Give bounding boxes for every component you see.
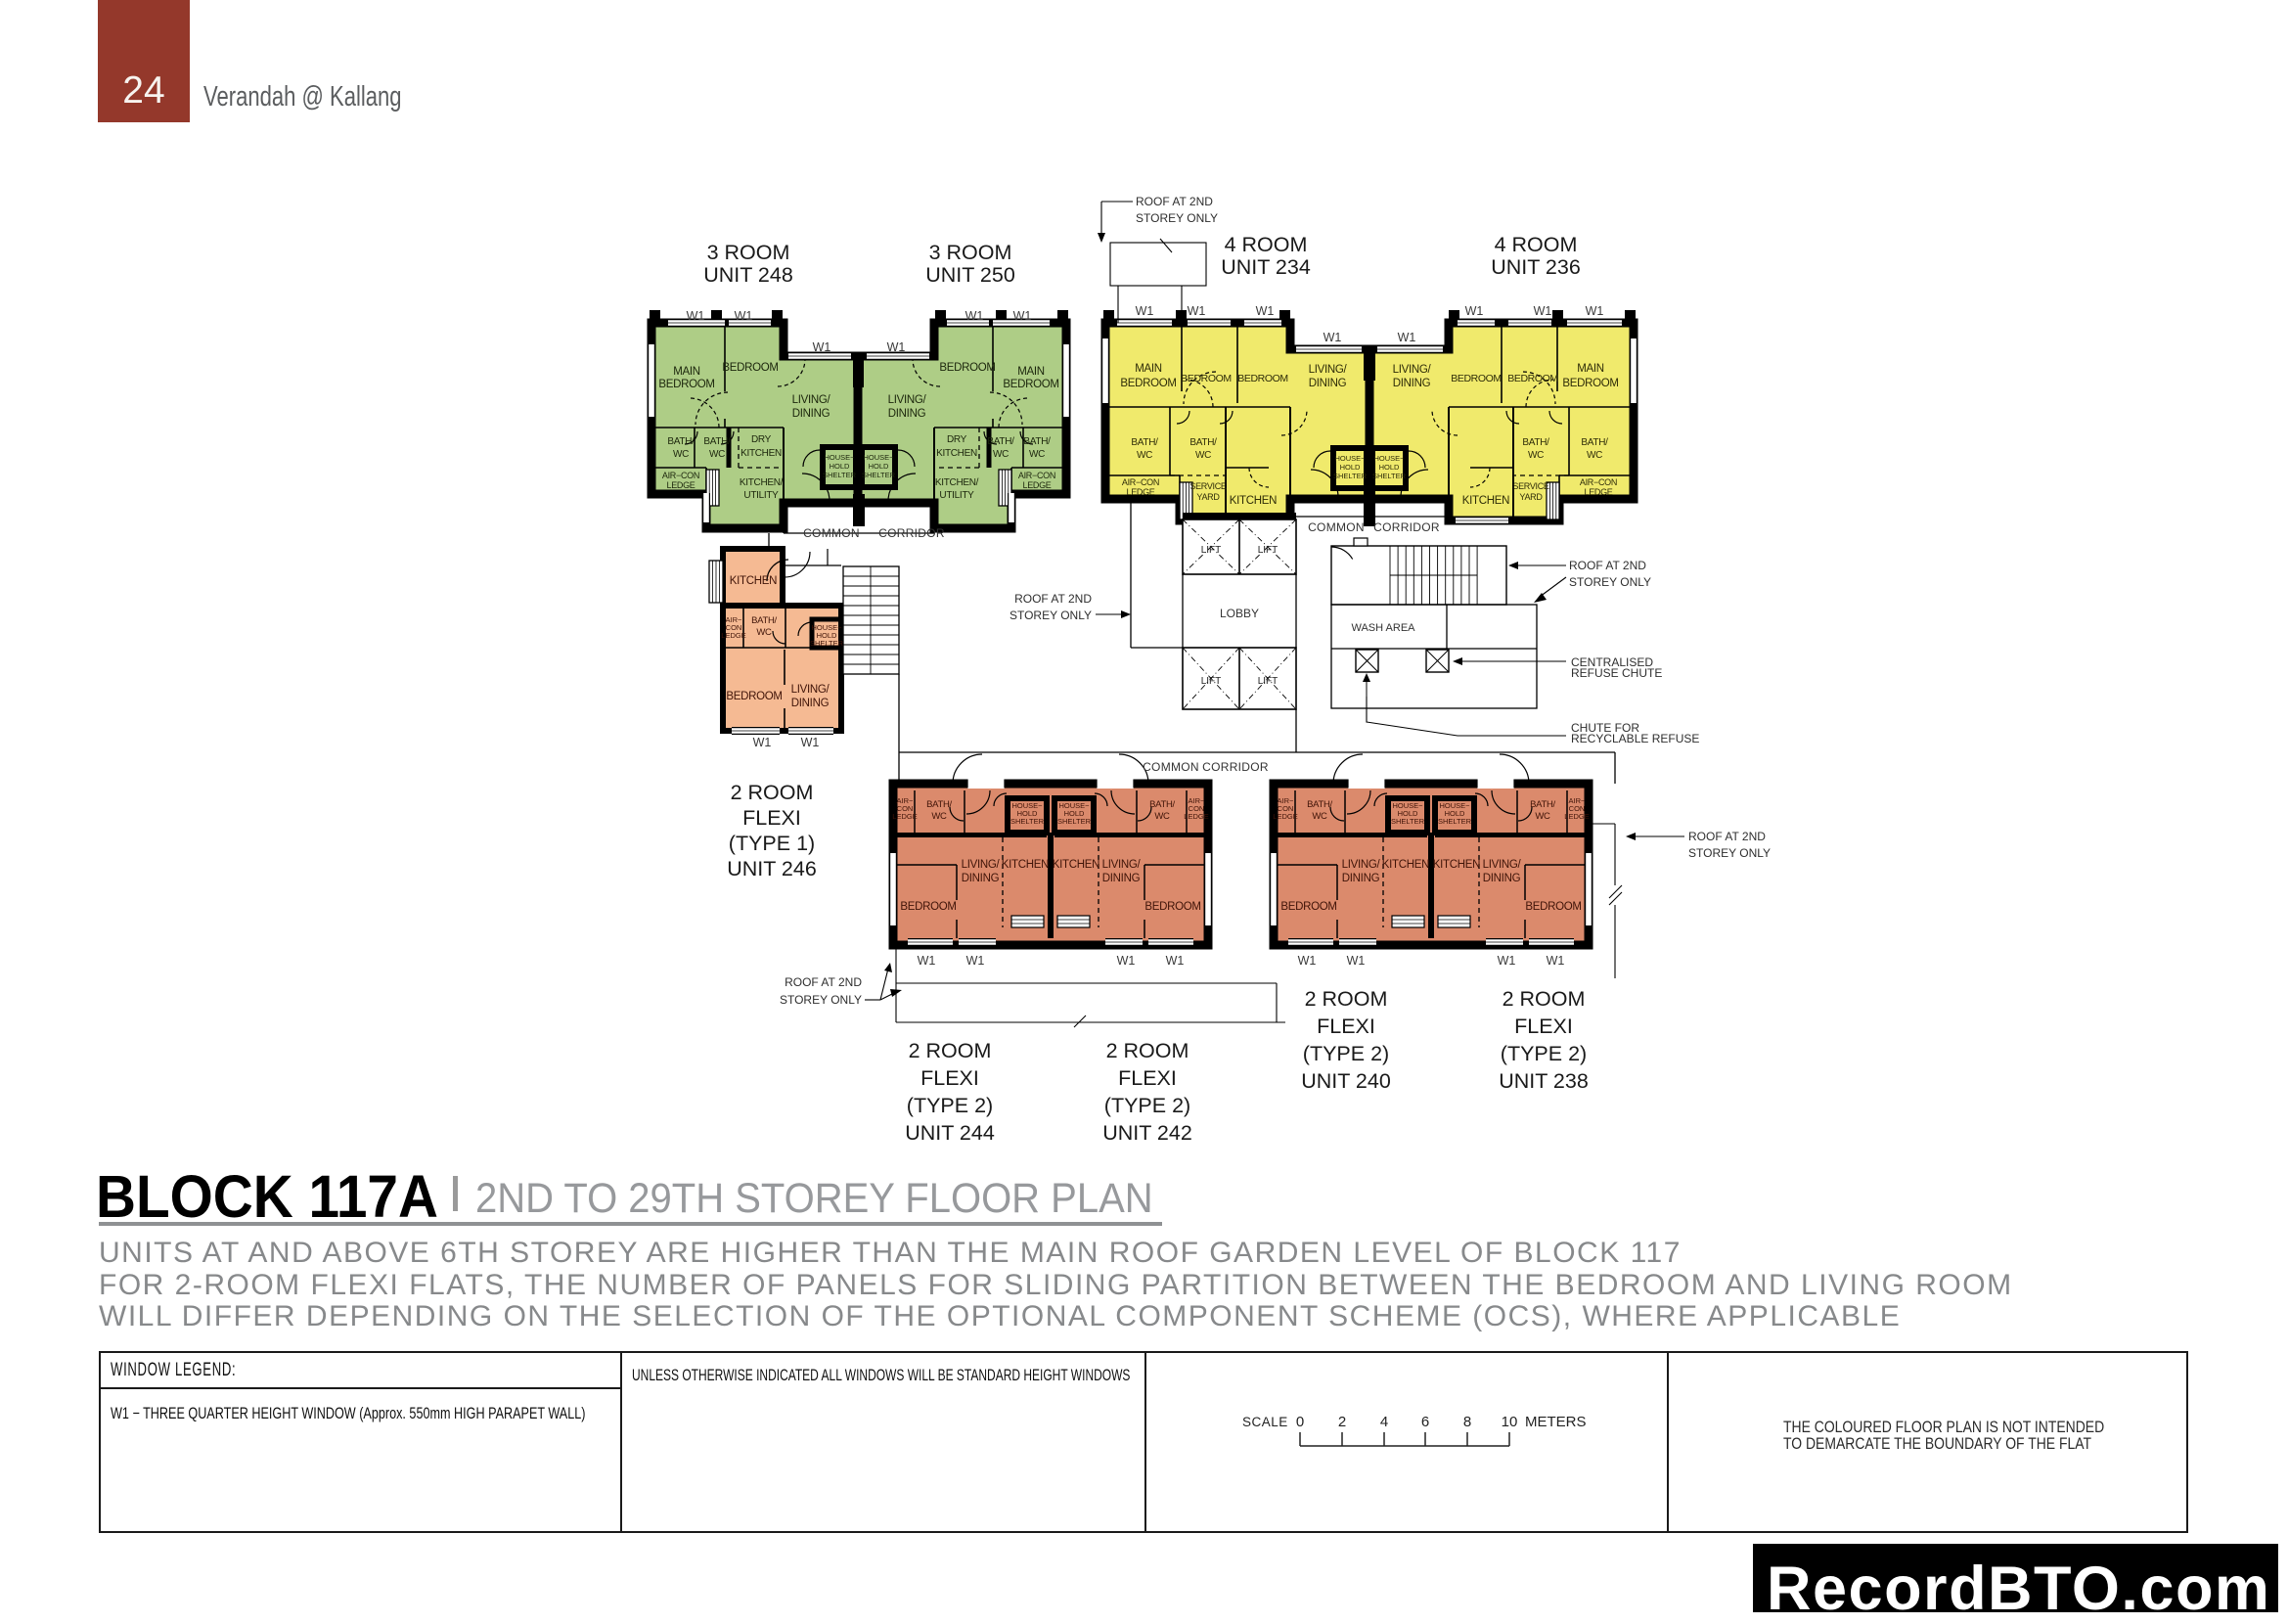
svg-text:LIFT: LIFT (1258, 676, 1279, 687)
svg-text:BATH/: BATH/ (1522, 437, 1549, 448)
svg-text:HOLD: HOLD (1379, 463, 1400, 472)
svg-text:METERS: METERS (1525, 1414, 1587, 1430)
svg-text:4 ROOM: 4 ROOM (1495, 233, 1578, 256)
svg-text:(TYPE 2): (TYPE 2) (907, 1094, 993, 1117)
svg-text:ROOF AT 2ND: ROOF AT 2ND (1136, 195, 1213, 208)
svg-text:BEDROOM: BEDROOM (1003, 379, 1058, 390)
svg-text:WC: WC (1528, 450, 1544, 461)
svg-text:DRY: DRY (947, 434, 967, 445)
svg-text:3 ROOM: 3 ROOM (929, 241, 1012, 264)
svg-text:SHELTER: SHELTER (862, 471, 896, 479)
svg-text:W1: W1 (965, 309, 984, 323)
svg-text:KITCHEN: KITCHEN (1433, 859, 1480, 871)
svg-text:LEDGE: LEDGE (1126, 487, 1154, 497)
svg-text:BATH/: BATH/ (1530, 799, 1555, 810)
svg-text:LIVING/: LIVING/ (792, 394, 831, 406)
svg-text:DINING: DINING (1483, 873, 1521, 884)
svg-text:W1: W1 (687, 309, 705, 323)
svg-text:W1: W1 (1136, 304, 1154, 318)
svg-text:UNIT 234: UNIT 234 (1221, 255, 1311, 279)
svg-text:HOLD: HOLD (1340, 463, 1361, 472)
svg-text:BATH/: BATH/ (1023, 436, 1051, 447)
svg-text:LOBBY: LOBBY (1220, 607, 1259, 620)
svg-text:BEDROOM: BEDROOM (939, 362, 995, 374)
svg-text:SERVICE: SERVICE (1512, 481, 1549, 491)
svg-text:BATH/: BATH/ (751, 615, 777, 626)
svg-text:UTILITY: UTILITY (743, 490, 779, 501)
svg-text:BEDROOM: BEDROOM (722, 362, 778, 374)
svg-text:DINING: DINING (791, 698, 830, 709)
svg-text:SHELTER: SHELTER (1333, 472, 1368, 480)
svg-text:LIFT: LIFT (1201, 545, 1222, 556)
svg-text:W1: W1 (1323, 331, 1342, 344)
svg-text:6: 6 (1421, 1414, 1429, 1430)
svg-text:WC: WC (931, 811, 947, 822)
svg-text:ROOF AT 2ND: ROOF AT 2ND (1014, 592, 1092, 606)
svg-text:MAIN: MAIN (1017, 366, 1045, 378)
svg-text:BEDROOM: BEDROOM (1144, 901, 1200, 913)
svg-text:UNIT 246: UNIT 246 (727, 857, 817, 880)
svg-text:HOUSE−: HOUSE− (1373, 454, 1405, 463)
svg-text:FLEXI: FLEXI (1317, 1015, 1375, 1038)
svg-text:AIR−CON: AIR−CON (662, 471, 699, 480)
svg-text:LEDGE: LEDGE (1584, 487, 1612, 497)
svg-text:SCALE: SCALE (1242, 1415, 1288, 1429)
svg-text:W1: W1 (1347, 954, 1366, 968)
svg-text:STOREY ONLY: STOREY ONLY (1009, 609, 1092, 622)
svg-text:MAIN: MAIN (1577, 363, 1604, 375)
svg-text:HOLD: HOLD (869, 462, 889, 471)
svg-text:(TYPE 2): (TYPE 2) (1104, 1094, 1190, 1117)
svg-text:WC: WC (673, 449, 689, 460)
svg-text:HOUSE−: HOUSE− (863, 453, 894, 462)
svg-text:BEDROOM: BEDROOM (1120, 378, 1176, 389)
svg-text:W1: W1 (966, 954, 985, 968)
svg-text:BEDROOM: BEDROOM (1562, 378, 1618, 389)
svg-text:W1: W1 (753, 736, 772, 749)
svg-text:KITCHEN: KITCHEN (1002, 859, 1049, 871)
svg-text:0: 0 (1296, 1414, 1304, 1430)
svg-text:2 ROOM: 2 ROOM (1503, 987, 1586, 1011)
svg-text:KITCHEN: KITCHEN (740, 448, 782, 459)
svg-text:BATH/: BATH/ (926, 799, 952, 810)
svg-text:W1: W1 (1586, 304, 1604, 318)
svg-text:DINING: DINING (1102, 873, 1141, 884)
svg-text:LEDGE: LEDGE (721, 631, 745, 640)
svg-text:W1: W1 (1256, 304, 1275, 318)
svg-text:W1: W1 (1117, 954, 1136, 968)
svg-text:ROOF AT 2ND: ROOF AT 2ND (1569, 559, 1646, 572)
svg-text:W1: W1 (1166, 954, 1185, 968)
svg-text:AIR−CON: AIR−CON (1580, 477, 1617, 487)
svg-text:BATH/: BATH/ (987, 436, 1014, 447)
svg-text:BEDROOM: BEDROOM (1280, 901, 1336, 913)
svg-text:UNIT 242: UNIT 242 (1102, 1121, 1192, 1145)
svg-text:LIVING/: LIVING/ (1102, 859, 1142, 871)
svg-text:W1: W1 (735, 309, 753, 323)
svg-text:W1: W1 (1547, 954, 1565, 968)
svg-text:W1: W1 (1298, 954, 1317, 968)
svg-text:UNIT 250: UNIT 250 (925, 263, 1015, 287)
svg-text:SHELTER: SHELTER (1391, 817, 1425, 826)
svg-text:10: 10 (1502, 1414, 1518, 1430)
svg-text:BATH/: BATH/ (1149, 799, 1175, 810)
svg-text:KITCHEN: KITCHEN (730, 575, 777, 587)
svg-text:W1: W1 (1398, 331, 1416, 344)
svg-text:(TYPE 2): (TYPE 2) (1303, 1042, 1389, 1065)
svg-text:2 ROOM: 2 ROOM (909, 1039, 992, 1062)
svg-text:BEDROOM: BEDROOM (658, 379, 714, 390)
svg-text:(TYPE 2): (TYPE 2) (1501, 1042, 1587, 1065)
svg-text:2 ROOM: 2 ROOM (1305, 987, 1388, 1011)
svg-text:W1: W1 (1013, 309, 1032, 323)
svg-text:LEDGE: LEDGE (1022, 480, 1051, 490)
svg-text:W1: W1 (918, 954, 936, 968)
svg-text:STOREY ONLY: STOREY ONLY (1688, 846, 1771, 860)
svg-text:ROOF AT 2ND: ROOF AT 2ND (1688, 830, 1766, 843)
svg-text:LIFT: LIFT (1258, 545, 1279, 556)
svg-text:CORRIDOR: CORRIDOR (1373, 520, 1440, 534)
svg-text:WC: WC (1137, 450, 1152, 461)
svg-text:BEDROOM: BEDROOM (1507, 373, 1557, 384)
svg-text:WC: WC (1029, 449, 1045, 460)
svg-text:2: 2 (1338, 1414, 1346, 1430)
svg-text:W1: W1 (801, 736, 820, 749)
svg-text:ROOF AT 2ND: ROOF AT 2ND (785, 975, 862, 989)
svg-text:UTILITY: UTILITY (939, 490, 974, 501)
svg-text:AIR−CON: AIR−CON (1018, 471, 1055, 480)
svg-text:FLEXI: FLEXI (1514, 1015, 1573, 1038)
svg-text:WC: WC (1312, 811, 1327, 822)
svg-text:WC: WC (1535, 811, 1550, 822)
svg-text:KITCHEN: KITCHEN (1382, 859, 1429, 871)
svg-text:W1: W1 (1498, 954, 1516, 968)
svg-text:STOREY ONLY: STOREY ONLY (780, 993, 862, 1007)
svg-text:BATH/: BATH/ (1307, 799, 1332, 810)
svg-text:SHELTER: SHELTER (1438, 817, 1472, 826)
svg-text:2 ROOM: 2 ROOM (731, 781, 814, 804)
svg-text:SHELTER: SHELTER (1057, 817, 1092, 826)
svg-text:WC: WC (1154, 811, 1170, 822)
svg-text:BATH/: BATH/ (667, 436, 695, 447)
svg-text:DINING: DINING (1393, 378, 1431, 389)
svg-text:MAIN: MAIN (673, 366, 700, 378)
svg-text:UNIT 236: UNIT 236 (1491, 255, 1581, 279)
svg-text:WC: WC (756, 627, 772, 638)
svg-text:KITCHEN/: KITCHEN/ (740, 477, 784, 488)
svg-text:YARD: YARD (1196, 492, 1220, 502)
svg-text:LEDGE: LEDGE (666, 480, 695, 490)
svg-text:DINING: DINING (1342, 873, 1380, 884)
svg-text:BATH/: BATH/ (1581, 437, 1608, 448)
svg-text:LIFT: LIFT (1201, 676, 1222, 687)
svg-text:RECYCLABLE REFUSE: RECYCLABLE REFUSE (1571, 732, 1699, 745)
svg-text:HOLD: HOLD (830, 462, 850, 471)
svg-text:BATH/: BATH/ (703, 436, 731, 447)
svg-text:W1: W1 (1534, 304, 1552, 318)
svg-text:SHELTER: SHELTER (823, 471, 857, 479)
svg-text:STOREY ONLY: STOREY ONLY (1569, 575, 1651, 589)
svg-text:WASH AREA: WASH AREA (1352, 622, 1416, 634)
svg-text:LEDGE: LEDGE (1273, 812, 1297, 821)
svg-text:SHELTER: SHELTER (810, 639, 844, 648)
svg-text:W1: W1 (1465, 304, 1484, 318)
svg-text:CORRIDOR: CORRIDOR (878, 526, 945, 540)
svg-text:KITCHEN: KITCHEN (936, 448, 977, 459)
svg-text:LIVING/: LIVING/ (1342, 859, 1381, 871)
svg-text:SHELTER: SHELTER (1372, 472, 1407, 480)
svg-text:FLEXI: FLEXI (920, 1066, 979, 1090)
svg-text:LEDGE: LEDGE (1564, 812, 1589, 821)
svg-text:LEDGE: LEDGE (892, 812, 917, 821)
svg-text:KITCHEN: KITCHEN (1230, 495, 1277, 507)
svg-text:UNIT 244: UNIT 244 (905, 1121, 995, 1145)
svg-text:LIVING/: LIVING/ (962, 859, 1001, 871)
svg-text:LIVING/: LIVING/ (888, 394, 927, 406)
svg-text:BEDROOM: BEDROOM (726, 691, 782, 702)
svg-text:DINING: DINING (962, 873, 1000, 884)
svg-text:W1: W1 (1188, 304, 1206, 318)
svg-text:W1: W1 (887, 340, 906, 354)
svg-text:FLEXI: FLEXI (742, 806, 801, 830)
svg-text:DINING: DINING (792, 408, 830, 420)
svg-text:4 ROOM: 4 ROOM (1225, 233, 1308, 256)
svg-text:LIVING/: LIVING/ (791, 684, 830, 696)
svg-text:YARD: YARD (1519, 492, 1543, 502)
svg-text:UNIT 238: UNIT 238 (1499, 1069, 1589, 1093)
svg-text:BEDROOM: BEDROOM (900, 901, 956, 913)
svg-text:(TYPE 1): (TYPE 1) (729, 832, 815, 855)
svg-text:COMMON: COMMON (1143, 760, 1199, 774)
svg-text:WC: WC (993, 449, 1009, 460)
svg-text:BEDROOM: BEDROOM (1525, 901, 1581, 913)
svg-text:DRY: DRY (751, 434, 772, 445)
svg-text:KITCHEN: KITCHEN (1053, 859, 1099, 871)
svg-text:2 ROOM: 2 ROOM (1106, 1039, 1189, 1062)
svg-text:LIVING/: LIVING/ (1483, 859, 1522, 871)
svg-text:AIR−CON: AIR−CON (1122, 477, 1159, 487)
svg-text:8: 8 (1463, 1414, 1471, 1430)
svg-text:CORRIDOR: CORRIDOR (1202, 760, 1269, 774)
svg-text:MAIN: MAIN (1135, 363, 1162, 375)
svg-text:STOREY ONLY: STOREY ONLY (1136, 211, 1218, 225)
svg-text:BEDROOM: BEDROOM (1237, 373, 1287, 384)
svg-text:SERVICE: SERVICE (1189, 481, 1227, 491)
svg-text:COMMON: COMMON (803, 526, 860, 540)
svg-text:HOUSE−: HOUSE− (824, 453, 855, 462)
svg-text:UNIT 248: UNIT 248 (703, 263, 793, 287)
svg-text:LIVING/: LIVING/ (1309, 364, 1348, 376)
svg-text:4: 4 (1380, 1414, 1388, 1430)
svg-text:BEDROOM: BEDROOM (1181, 373, 1231, 384)
svg-text:FLEXI: FLEXI (1118, 1066, 1177, 1090)
svg-text:DINING: DINING (888, 408, 926, 420)
svg-text:HOUSE−: HOUSE− (1334, 454, 1366, 463)
svg-text:WC: WC (1587, 450, 1602, 461)
svg-text:LIVING/: LIVING/ (1393, 364, 1432, 376)
svg-text:COMMON: COMMON (1308, 520, 1365, 534)
svg-text:LEDGE: LEDGE (1184, 812, 1208, 821)
svg-text:WC: WC (1195, 450, 1211, 461)
svg-text:REFUSE CHUTE: REFUSE CHUTE (1571, 666, 1662, 680)
svg-text:DINING: DINING (1309, 378, 1347, 389)
svg-text:3 ROOM: 3 ROOM (707, 241, 790, 264)
svg-text:UNIT 240: UNIT 240 (1301, 1069, 1391, 1093)
svg-text:BATH/: BATH/ (1189, 437, 1217, 448)
svg-text:SHELTER: SHELTER (1010, 817, 1045, 826)
svg-text:WC: WC (709, 449, 725, 460)
svg-text:BEDROOM: BEDROOM (1451, 373, 1501, 384)
svg-text:BATH/: BATH/ (1131, 437, 1158, 448)
svg-text:KITCHEN/: KITCHEN/ (935, 477, 979, 488)
svg-text:W1: W1 (813, 340, 831, 354)
svg-text:KITCHEN: KITCHEN (1462, 495, 1509, 507)
